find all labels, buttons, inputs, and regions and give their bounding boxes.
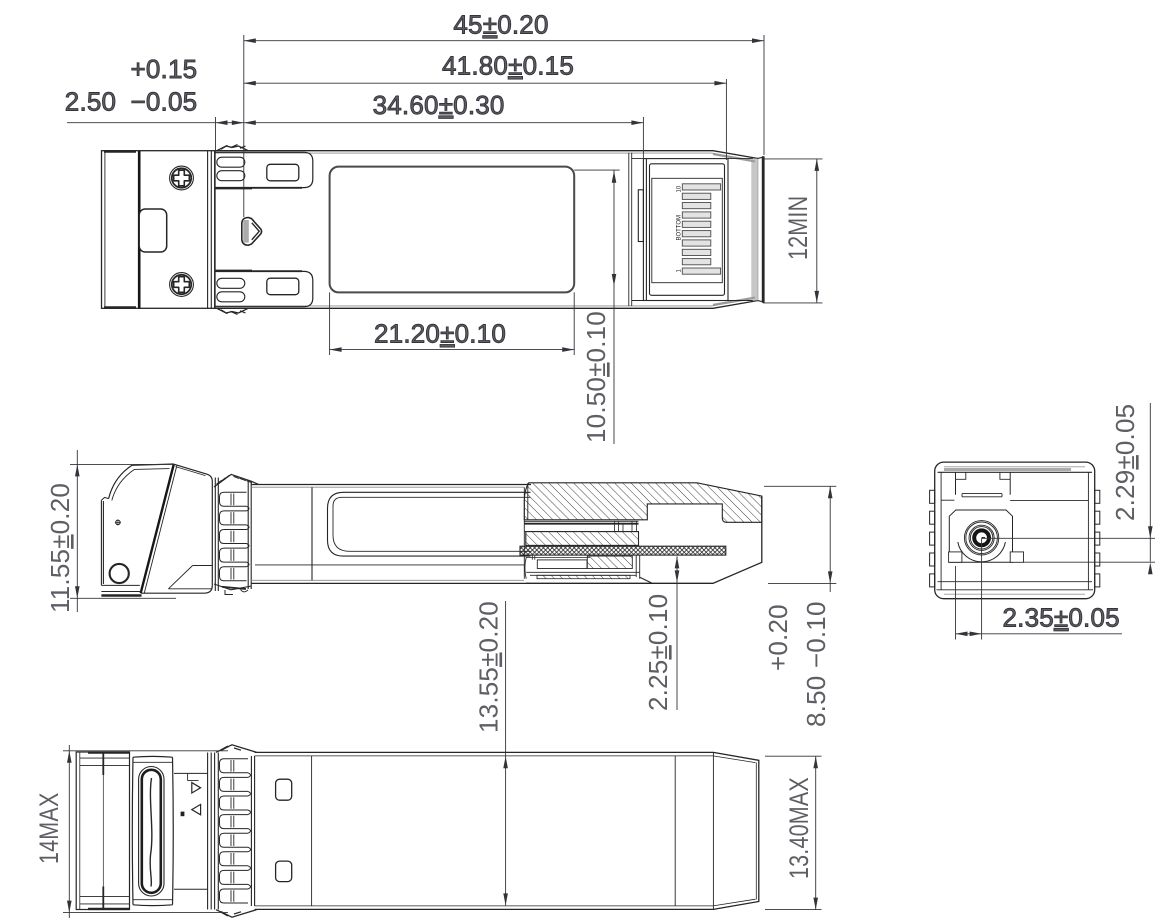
svg-text:BOTTOM: BOTTOM [677, 215, 683, 241]
svg-text:2.35±0.05: 2.35±0.05 [1003, 602, 1120, 632]
svg-text:13.55±0.20: 13.55±0.20 [474, 601, 504, 733]
svg-text:21.20±0.10: 21.20±0.10 [374, 319, 506, 349]
svg-text:45±0.20: 45±0.20 [453, 10, 548, 40]
svg-text:+0.20: +0.20 [763, 604, 793, 671]
svg-text:10: 10 [677, 185, 683, 192]
svg-text:12MIN: 12MIN [784, 196, 814, 260]
svg-text:10.50±0.10: 10.50±0.10 [581, 311, 611, 443]
svg-text:−0.05: −0.05 [131, 86, 198, 116]
svg-text:8.50 −0.10: 8.50 −0.10 [801, 601, 831, 727]
svg-text:41.80±0.15: 41.80±0.15 [442, 51, 574, 81]
svg-text:13.40MAX: 13.40MAX [785, 777, 815, 879]
svg-text:2.25±0.10: 2.25±0.10 [643, 594, 673, 711]
svg-text:2.29±0.05: 2.29±0.05 [1110, 404, 1140, 521]
svg-text:11.55±0.20: 11.55±0.20 [45, 483, 75, 613]
svg-text:34.60±0.30: 34.60±0.30 [373, 90, 505, 120]
svg-text:2.50: 2.50 [65, 86, 116, 116]
svg-text:1: 1 [677, 269, 683, 273]
svg-text:+0.15: +0.15 [131, 54, 198, 84]
svg-text:14MAX: 14MAX [35, 793, 65, 864]
